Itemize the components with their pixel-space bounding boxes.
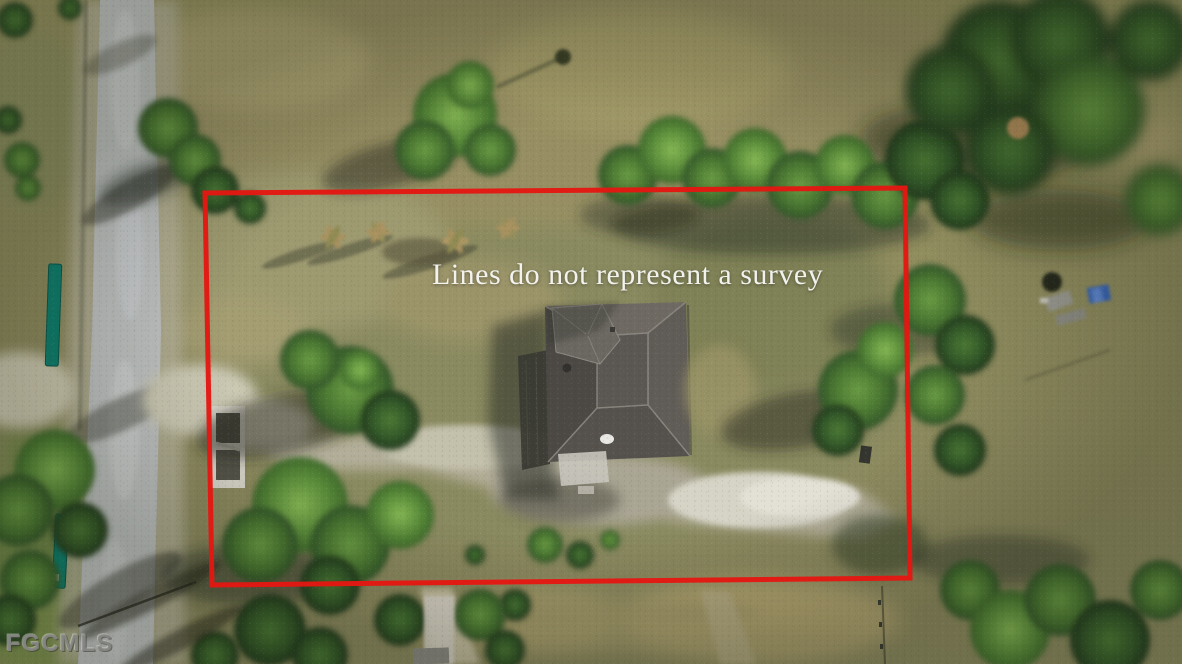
aerial-photo: Lines do not represent a survey FGCMLS bbox=[0, 0, 1182, 664]
aerial-photo-canvas bbox=[0, 0, 1182, 664]
vignette bbox=[0, 0, 1182, 664]
